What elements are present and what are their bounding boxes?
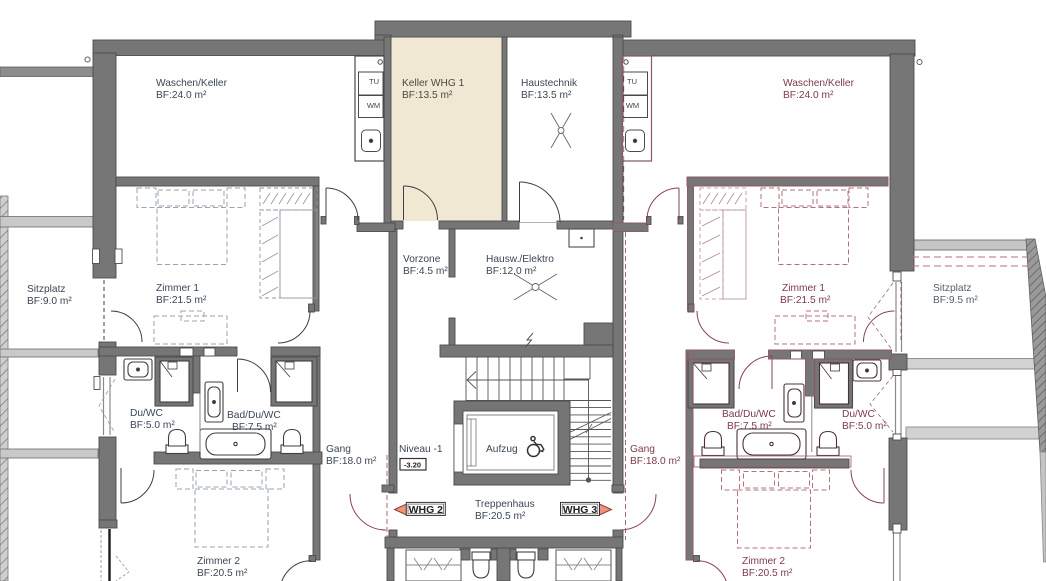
svg-text:BF:24.0 m²: BF:24.0 m² xyxy=(783,90,834,101)
svg-text:Treppenhaus: Treppenhaus xyxy=(475,499,535,510)
svg-text:Zimmer 1: Zimmer 1 xyxy=(782,283,825,294)
svg-text:Gang: Gang xyxy=(630,444,655,455)
svg-text:BF:20.5 m²: BF:20.5 m² xyxy=(742,568,793,579)
svg-text:WM: WM xyxy=(367,101,380,110)
svg-text:BF:7.5 m²: BF:7.5 m² xyxy=(727,421,772,432)
svg-text:BF:18.0 m²: BF:18.0 m² xyxy=(326,456,377,467)
svg-text:BF:9.5 m²: BF:9.5 m² xyxy=(933,295,978,306)
svg-text:Bad/Du/WC: Bad/Du/WC xyxy=(722,409,776,420)
svg-text:Du/WC: Du/WC xyxy=(842,409,875,420)
svg-text:Keller WHG 1: Keller WHG 1 xyxy=(402,78,465,89)
svg-text:-3.20: -3.20 xyxy=(404,461,421,470)
svg-text:Zimmer 2: Zimmer 2 xyxy=(742,556,785,567)
svg-text:BF:21.5 m²: BF:21.5 m² xyxy=(780,295,831,306)
svg-text:Waschen/Keller: Waschen/Keller xyxy=(156,78,228,89)
svg-text:Hausw./Elektro: Hausw./Elektro xyxy=(486,254,554,265)
svg-text:Zimmer 2: Zimmer 2 xyxy=(197,556,240,567)
svg-text:Aufzug: Aufzug xyxy=(486,444,518,455)
svg-text:Zimmer 1: Zimmer 1 xyxy=(156,283,199,294)
svg-text:WM: WM xyxy=(626,101,639,110)
svg-text:Vorzone: Vorzone xyxy=(403,254,441,265)
svg-text:Sitzplatz: Sitzplatz xyxy=(27,284,66,295)
svg-text:BF:20.5 m²: BF:20.5 m² xyxy=(197,568,248,579)
svg-text:Bad/Du/WC: Bad/Du/WC xyxy=(227,410,281,421)
svg-text:BF:5.0 m²: BF:5.0 m² xyxy=(842,421,887,432)
svg-text:WHG 3: WHG 3 xyxy=(563,504,598,516)
svg-text:Du/WC: Du/WC xyxy=(130,408,163,419)
svg-text:BF:24.0 m²: BF:24.0 m² xyxy=(156,90,207,101)
svg-text:BF:21.5 m²: BF:21.5 m² xyxy=(156,295,207,306)
svg-text:Waschen/Keller: Waschen/Keller xyxy=(783,78,855,89)
svg-text:BF:9.0 m²: BF:9.0 m² xyxy=(27,296,72,307)
svg-text:BF:18.0 m²: BF:18.0 m² xyxy=(630,456,681,467)
svg-text:Gang: Gang xyxy=(326,444,351,455)
svg-text:BF:13.5 m²: BF:13.5 m² xyxy=(521,90,572,101)
svg-text:Sitzplatz: Sitzplatz xyxy=(933,283,972,294)
svg-text:TU: TU xyxy=(369,77,379,86)
svg-text:BF:12.0 m²: BF:12.0 m² xyxy=(486,266,537,277)
svg-text:BF:4.5 m²: BF:4.5 m² xyxy=(403,266,448,277)
svg-text:Niveau -1: Niveau -1 xyxy=(399,444,443,455)
svg-text:WHG 2: WHG 2 xyxy=(409,504,444,516)
svg-text:BF:20.5 m²: BF:20.5 m² xyxy=(475,511,526,522)
svg-text:TU: TU xyxy=(627,77,637,86)
svg-text:Haustechnik: Haustechnik xyxy=(521,78,578,89)
svg-text:BF:7.5 m²: BF:7.5 m² xyxy=(232,422,277,433)
svg-text:BF:13.5 m²: BF:13.5 m² xyxy=(402,90,453,101)
svg-text:BF:5.0 m²: BF:5.0 m² xyxy=(130,420,175,431)
